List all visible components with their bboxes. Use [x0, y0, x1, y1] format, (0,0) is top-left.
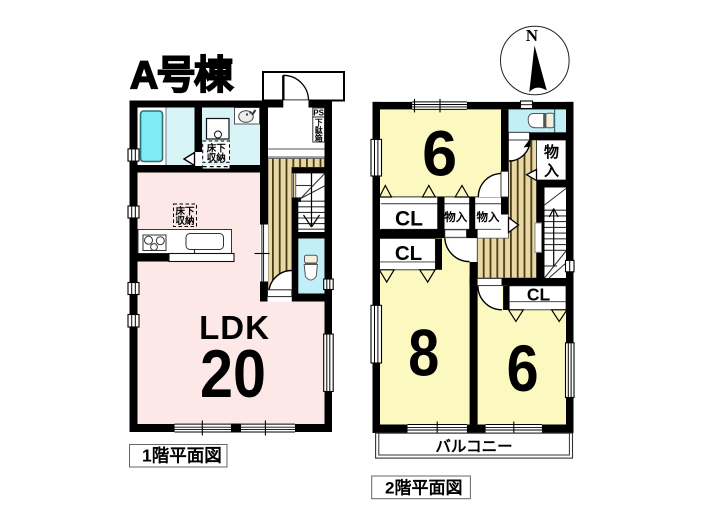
svg-text:N: N	[526, 26, 539, 45]
svg-text:2階平面図: 2階平面図	[385, 479, 462, 498]
svg-text:A号棟: A号棟	[130, 55, 234, 98]
svg-text:入: 入	[544, 163, 559, 180]
svg-text:6: 6	[507, 331, 539, 405]
svg-text:箱: 箱	[315, 133, 323, 143]
svg-text:CL: CL	[395, 242, 422, 265]
svg-text:1階平面図: 1階平面図	[142, 446, 222, 466]
svg-text:PS: PS	[313, 109, 324, 118]
svg-text:8: 8	[408, 316, 439, 390]
svg-text:CL: CL	[527, 285, 551, 305]
svg-text:20: 20	[200, 336, 266, 412]
svg-text:物: 物	[544, 143, 559, 161]
svg-text:CL: CL	[395, 208, 423, 231]
svg-text:収納: 収納	[207, 152, 226, 164]
svg-text:物入: 物入	[477, 210, 500, 224]
svg-text:バルコニー: バルコニー	[435, 438, 512, 456]
svg-text:6: 6	[422, 118, 457, 190]
svg-text:収納: 収納	[175, 215, 194, 227]
svg-text:物入: 物入	[444, 210, 467, 224]
